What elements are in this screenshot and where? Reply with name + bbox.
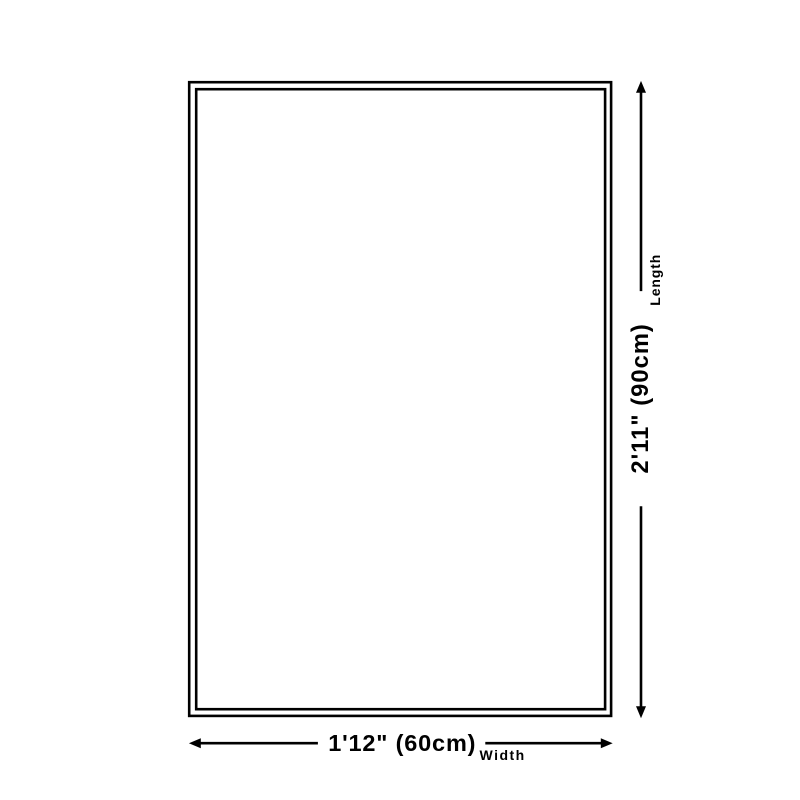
svg-text:2'11" (90cm): 2'11" (90cm) (628, 324, 654, 473)
svg-text:1'12" (60cm): 1'12" (60cm) (328, 730, 475, 756)
svg-text:Length: Length (647, 255, 663, 306)
svg-text:Width: Width (480, 747, 525, 763)
